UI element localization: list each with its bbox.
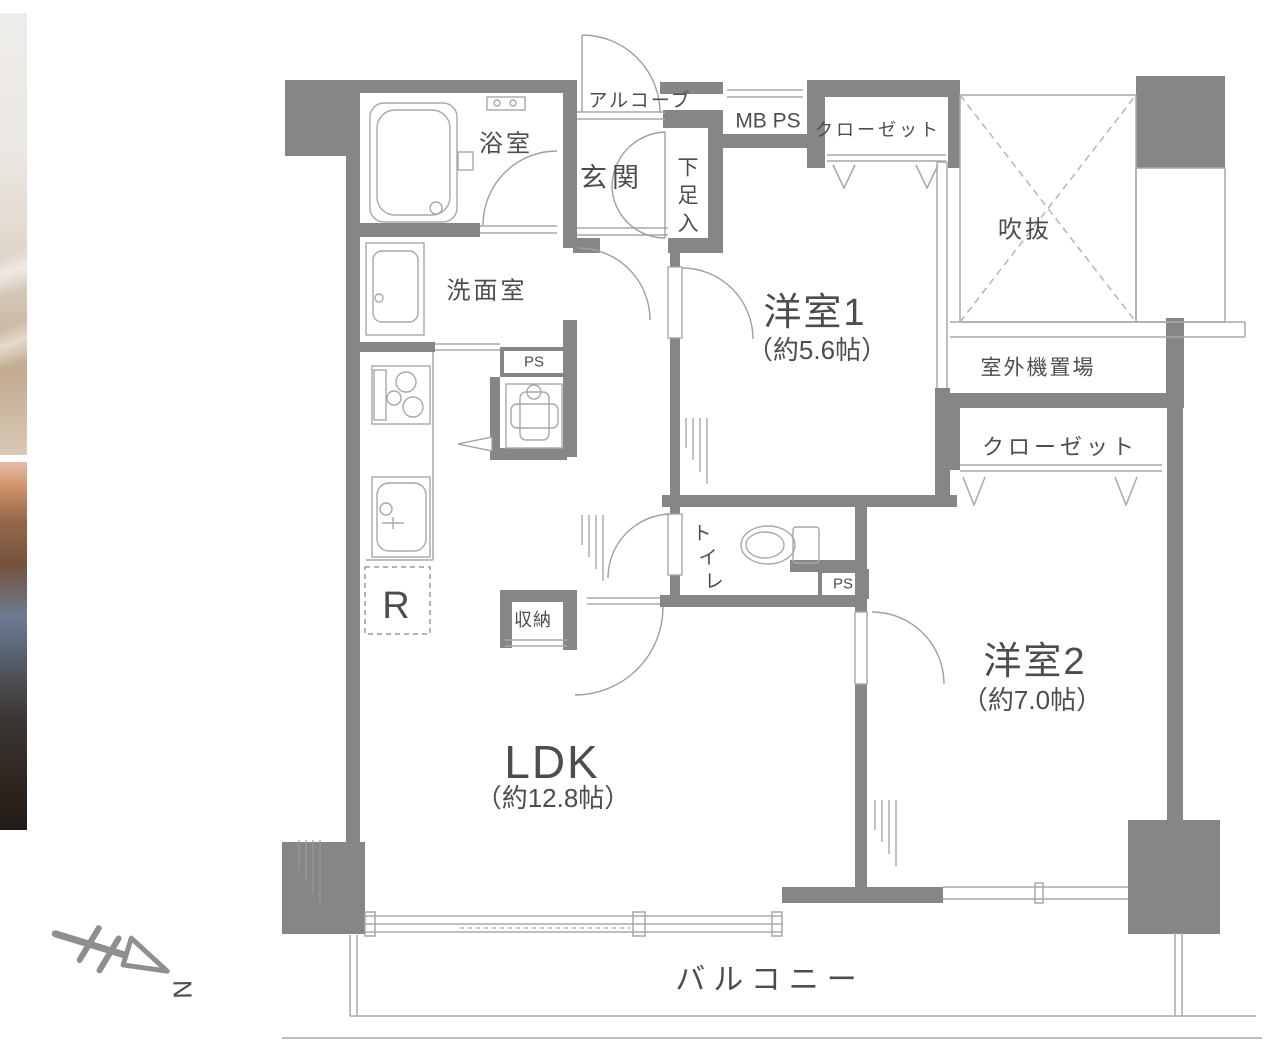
hanger-icon	[963, 477, 985, 505]
wall-bath-bottom	[360, 223, 480, 237]
stove-icon	[372, 366, 430, 424]
shoe-closet-door-arc	[612, 187, 665, 238]
toilet-label: ト イ レ	[692, 524, 723, 593]
western2-label: 洋室2	[983, 641, 1086, 683]
wall-shaft-bottom	[490, 448, 567, 460]
wall-storage-left	[500, 602, 512, 648]
wall-column-right-1	[563, 93, 577, 248]
wall-outdoor-right	[1166, 318, 1184, 408]
mb-ps-label: MB PS	[735, 110, 800, 133]
wall-washroom-bottom	[360, 342, 435, 352]
pillar-top-right	[1136, 76, 1225, 168]
washroom-door-arc	[578, 248, 650, 320]
refrigerator-label: R	[382, 585, 409, 627]
wall-ldk-door-stub	[660, 595, 678, 607]
room-labels: アルコーブ MB PS クローゼット 吹抜 室外機置場 クローゼット 浴室 玄関…	[382, 89, 1138, 997]
shoe-closet-label: 下 足 入	[678, 157, 699, 236]
ps-toilet-label: PS	[833, 576, 853, 593]
wall-hatch-marks	[299, 418, 896, 906]
washbasin-icon	[366, 243, 424, 335]
wall-above-closet2	[948, 393, 1168, 408]
ldk-label: LDK	[504, 736, 599, 788]
wall-shoe-closet-right	[708, 128, 723, 240]
kitchen-sink-icon	[372, 477, 430, 557]
washroom-label: 洗面室	[447, 278, 528, 305]
hanger-icon	[1115, 477, 1137, 505]
wall-column-right-2	[563, 320, 577, 457]
north-arrow-head	[123, 938, 173, 978]
water-heater-icon	[506, 384, 562, 448]
ldk-door-arc	[575, 607, 663, 695]
wall-hall-stub	[670, 250, 680, 267]
shower-counter-icon	[487, 97, 525, 110]
wall-western1-bottom	[662, 495, 957, 507]
western1-door-frame	[668, 267, 682, 338]
ldk-size: （約12.8帖）	[476, 783, 631, 813]
hanger-icon	[916, 165, 938, 188]
north-label: N	[167, 980, 197, 999]
closet2-label: クローゼット	[982, 435, 1138, 460]
balcony-label: バルコニー	[675, 964, 864, 997]
svg-text:足: 足	[678, 185, 699, 208]
wall-ldk-western2-2	[855, 684, 867, 887]
svg-text:入: 入	[678, 213, 699, 236]
western2-door-frame	[855, 612, 867, 684]
svg-text:ト: ト	[692, 524, 711, 545]
storage-label: 収納	[514, 610, 552, 630]
hanger-icon	[833, 165, 855, 188]
western1-door-arc	[682, 268, 753, 339]
range-hood-pointer	[458, 437, 492, 451]
wall-mbps-bottom	[723, 134, 807, 148]
bathtub-icon	[370, 103, 457, 222]
svg-text:イ: イ	[698, 548, 717, 569]
closet1-label: クローゼット	[815, 120, 941, 140]
wall-alcove-right	[663, 110, 723, 128]
bathroom-door-arc	[483, 151, 557, 225]
pillar-bottom-left	[282, 842, 365, 934]
alcove-label: アルコーブ	[588, 89, 691, 112]
floor-plan-page: アルコーブ MB PS クローゼット 吹抜 室外機置場 クローゼット 浴室 玄関…	[0, 0, 1276, 1060]
floor-plan-drawing: アルコーブ MB PS クローゼット 吹抜 室外機置場 クローゼット 浴室 玄関…	[0, 0, 1276, 1060]
wall-western2-bottom	[782, 887, 943, 903]
wall-western1-right	[935, 388, 950, 495]
toilet-door-arc	[608, 514, 670, 578]
toilet-icon	[741, 526, 819, 564]
void-label: 吹抜	[998, 217, 1052, 244]
svg-text:レ: レ	[704, 572, 723, 593]
entrance-label: 玄関	[580, 163, 644, 193]
wall-toilet-left-2	[670, 575, 680, 595]
bathroom-label: 浴室	[479, 131, 533, 158]
wall-top-closet1	[825, 80, 948, 97]
outdoor-unit-label: 室外機置場	[981, 357, 1096, 380]
western1-size: （約5.6帖）	[747, 335, 887, 365]
north-compass: N	[47, 917, 209, 1008]
void-side-area	[1136, 168, 1225, 322]
wall-left	[346, 80, 360, 842]
ps-upper-label: PS	[524, 354, 544, 371]
svg-text:下: 下	[678, 157, 699, 180]
walls	[282, 76, 1225, 934]
pillar-bottom-right	[1128, 820, 1220, 934]
western2-size: （約7.0帖）	[962, 685, 1102, 715]
wall-western2-right	[1167, 408, 1183, 820]
wall-closet1-right	[948, 80, 960, 168]
wall-storage-top	[500, 590, 567, 602]
western2-door-arc	[872, 612, 944, 684]
western1-label: 洋室1	[763, 292, 866, 334]
bath-shelf-icon	[458, 152, 473, 170]
wall-top	[345, 80, 577, 93]
toilet-door-frame	[668, 514, 682, 575]
wall-hall-west1	[670, 338, 680, 495]
